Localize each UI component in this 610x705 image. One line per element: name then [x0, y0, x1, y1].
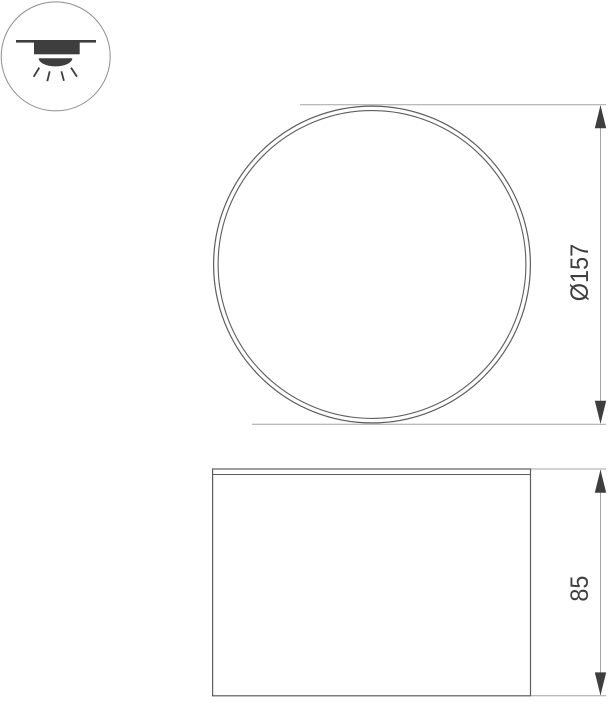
svg-text:Ø157: Ø157 — [566, 244, 594, 301]
svg-text:85: 85 — [566, 576, 594, 602]
